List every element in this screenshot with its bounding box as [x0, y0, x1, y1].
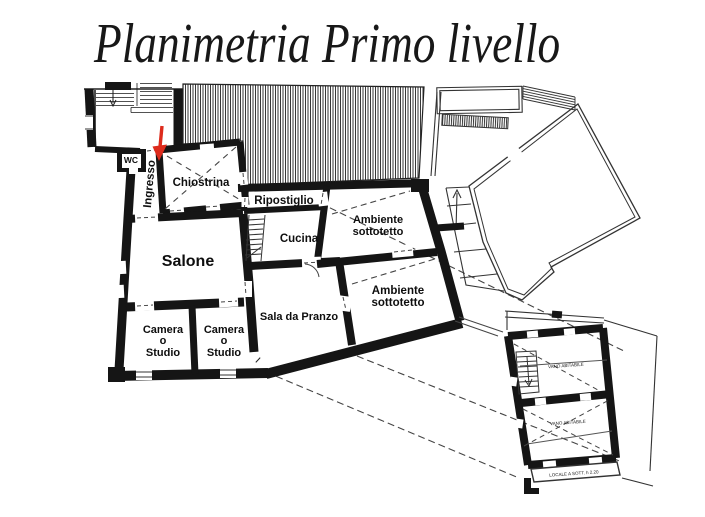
svg-text:Ripostiglio: Ripostiglio	[254, 195, 313, 207]
svg-text:Cucina: Cucina	[280, 233, 319, 245]
svg-text:sottotetto: sottotetto	[371, 297, 424, 309]
svg-text:VANO ABITABILE: VANO ABITABILE	[550, 419, 586, 426]
svg-text:Studio: Studio	[146, 347, 180, 359]
svg-text:Studio: Studio	[207, 347, 241, 359]
svg-text:sottotetto: sottotetto	[353, 226, 404, 238]
svg-text:VANO ABITABILE: VANO ABITABILE	[548, 362, 584, 369]
svg-text:Ambiente: Ambiente	[353, 214, 403, 226]
svg-text:Chiostrina: Chiostrina	[173, 177, 230, 189]
svg-text:LOCALE A SOTT. h 2.20: LOCALE A SOTT. h 2.20	[549, 469, 599, 477]
svg-text:Ambiente: Ambiente	[372, 285, 424, 297]
svg-text:Sala da Pranzo: Sala da Pranzo	[260, 311, 339, 323]
svg-text:Salone: Salone	[162, 253, 215, 270]
svg-text:o: o	[160, 335, 167, 347]
svg-text:WC: WC	[124, 155, 138, 165]
svg-text:o: o	[221, 335, 228, 347]
